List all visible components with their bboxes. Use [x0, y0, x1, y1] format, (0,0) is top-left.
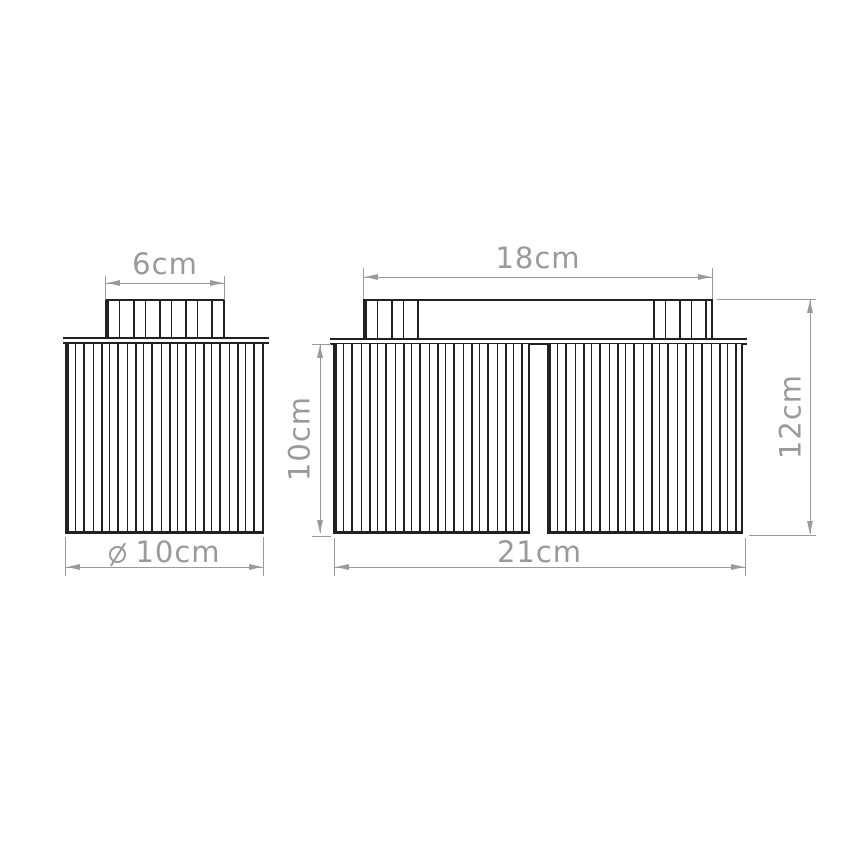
single-shade: [65, 344, 264, 534]
lamp-technical-drawing: 6cm 10cm 18cm 10cm: [0, 0, 868, 868]
extension-line: [105, 276, 106, 300]
dimension-line: [106, 283, 224, 284]
dimension-label: 10cm: [286, 379, 315, 499]
single-ceiling-plate: [63, 337, 269, 344]
arrow-down-icon: [807, 521, 813, 534]
extension-line: [745, 538, 746, 576]
single-canopy: [105, 299, 225, 340]
dimension-label: 6cm: [105, 250, 225, 279]
arrow-left-icon: [365, 274, 378, 280]
dimension-value: 10cm: [135, 535, 220, 569]
extension-line: [717, 299, 816, 300]
arrow-right-icon: [210, 280, 223, 286]
double-shade-right: [547, 344, 743, 534]
arrow-left-icon: [107, 280, 120, 286]
dimension-line: [320, 345, 321, 533]
canopy-rib-right: [653, 301, 711, 338]
dimension-label: 10cm: [55, 538, 275, 567]
extension-tick: [312, 536, 331, 537]
double-shade-left: [333, 344, 530, 534]
dimension-label: 18cm: [363, 244, 713, 273]
dimension-line: [364, 277, 712, 278]
arrow-right-icon: [698, 274, 711, 280]
double-canopy: [363, 299, 713, 340]
arrow-up-icon: [807, 300, 813, 313]
canopy-rib-left: [365, 301, 423, 338]
arrow-down-icon: [317, 520, 323, 533]
dimension-label: 12cm: [777, 357, 806, 477]
extension-line: [749, 535, 816, 536]
extension-line: [224, 276, 225, 300]
dimension-line: [810, 300, 811, 534]
dimension-label: 21cm: [334, 538, 745, 567]
arrow-up-icon: [317, 345, 323, 358]
diameter-icon: [109, 546, 126, 563]
